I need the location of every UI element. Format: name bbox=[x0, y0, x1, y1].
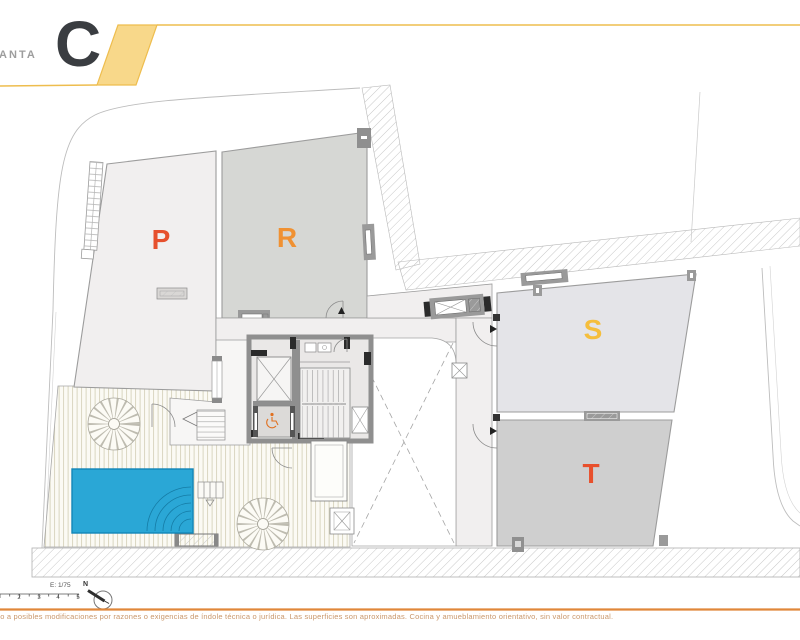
scale-tick-5: 5 bbox=[74, 595, 82, 601]
spiral-stair bbox=[237, 498, 289, 550]
palm-fan bbox=[88, 398, 140, 450]
room-label-p: P bbox=[144, 224, 178, 256]
grill-vent bbox=[175, 534, 218, 546]
stair-core bbox=[249, 337, 371, 441]
planter bbox=[311, 441, 347, 501]
floor-plan-canvas bbox=[0, 0, 800, 640]
scale-tick-3: 3 bbox=[35, 595, 43, 601]
north-label: N bbox=[83, 581, 88, 588]
scale-label: E: 1/75 bbox=[50, 582, 71, 589]
plan-page: PLANTA C P R S T E: 1/75 N 2 3 4 5 sto a… bbox=[0, 0, 800, 640]
plan-letter: C bbox=[55, 12, 101, 76]
floor-vent bbox=[157, 288, 187, 299]
entry-steps bbox=[197, 410, 225, 440]
accessible-lobby bbox=[253, 406, 295, 437]
swimming-pool bbox=[72, 469, 193, 533]
scale-tick-4: 4 bbox=[54, 595, 62, 601]
room-p bbox=[74, 151, 216, 391]
doc-type-label: PLANTA bbox=[0, 49, 37, 61]
north-arrow-icon bbox=[88, 591, 112, 610]
header-ribbon bbox=[0, 25, 800, 86]
outdoor-shower bbox=[330, 508, 354, 534]
staircase bbox=[300, 368, 350, 438]
street-band bbox=[32, 548, 800, 577]
disclaimer-text: sto a posibles modificaciones por razone… bbox=[0, 612, 613, 621]
duct-shaft bbox=[352, 407, 368, 433]
hall-window bbox=[212, 356, 222, 403]
room-label-t: T bbox=[574, 458, 608, 490]
room-label-r: R bbox=[270, 222, 304, 254]
elevator-shaft bbox=[257, 357, 291, 401]
window bbox=[362, 224, 376, 261]
divider-window bbox=[584, 411, 620, 421]
room-label-s: S bbox=[576, 314, 610, 346]
scale-tick-2: 2 bbox=[15, 595, 23, 601]
shaft-box bbox=[452, 363, 467, 378]
